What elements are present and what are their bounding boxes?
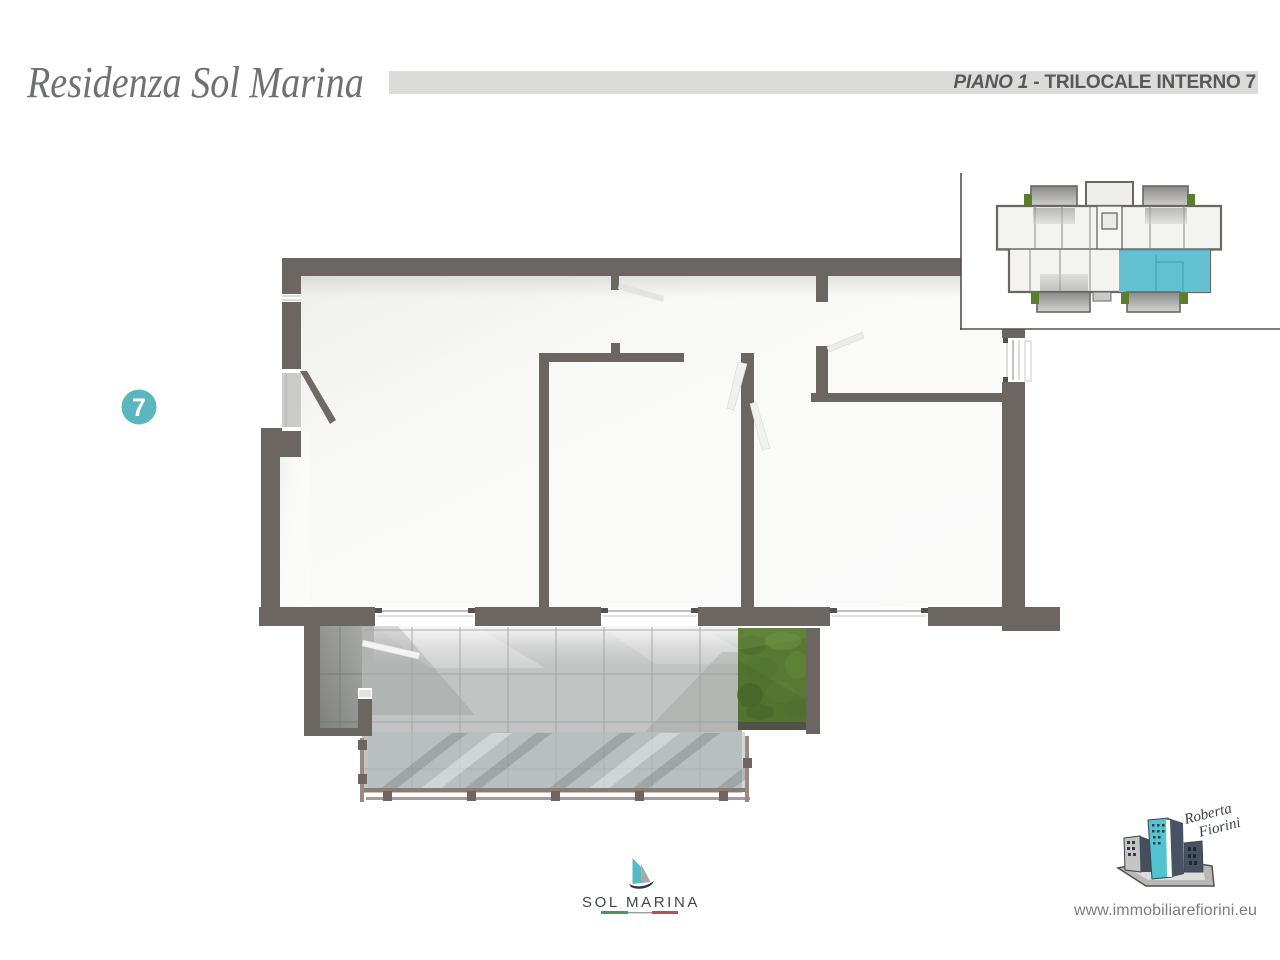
svg-text:SOL MARINA: SOL MARINA: [582, 894, 700, 911]
svg-text:7: 7: [132, 394, 146, 422]
svg-text:Residenza Sol Marina: Residenza Sol Marina: [26, 57, 364, 106]
svg-text:www.immobiliarefiorini.eu: www.immobiliarefiorini.eu: [1073, 902, 1257, 919]
svg-text:PIANO 1 - TRILOCALE INTERNO 7: PIANO 1 - TRILOCALE INTERNO 7: [954, 72, 1256, 93]
